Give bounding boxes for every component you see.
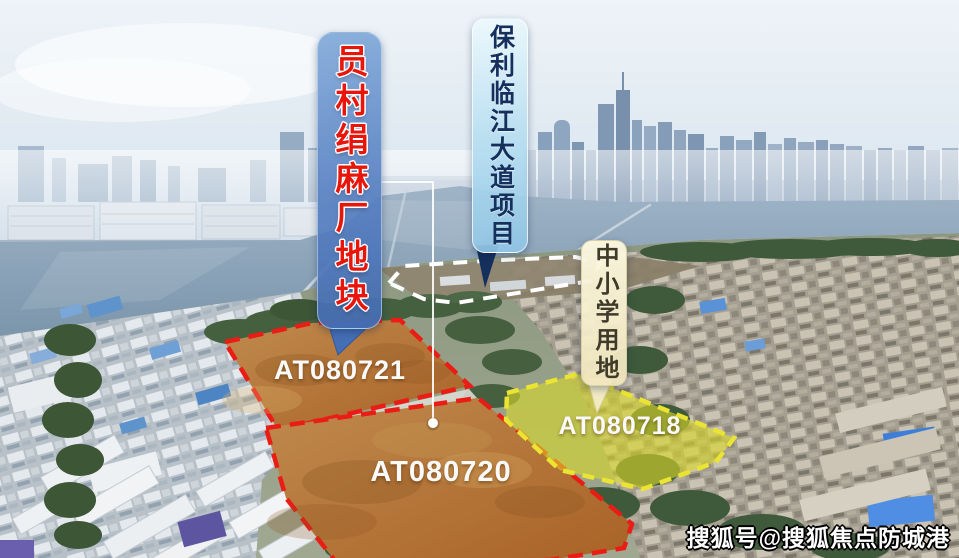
callout-factory-parcel: 员村绢麻厂地块 xyxy=(317,32,382,329)
callout-school-land: 中小学用地 xyxy=(581,240,627,386)
callout-factory-parcel-label: 员村绢麻厂地块 xyxy=(333,44,366,317)
callout-poly-project-label: 保利临江大道项目 xyxy=(488,24,513,248)
aerial-photo: 员村绢麻厂地块 保利临江大道项目 中小学用地 AT080721 AT080720… xyxy=(0,0,959,558)
parcel-label-at080718: AT080718 xyxy=(530,412,710,441)
leader-dot xyxy=(428,418,438,428)
callout-school-land-label: 中小学用地 xyxy=(592,243,616,383)
callout-poly-project: 保利临江大道项目 xyxy=(472,18,528,253)
parcel-label-at080720: AT080720 xyxy=(336,456,546,489)
parcel-label-at080721: AT080721 xyxy=(240,355,440,386)
watermark: 搜狐号@搜狐焦点防城港站 xyxy=(682,519,950,558)
